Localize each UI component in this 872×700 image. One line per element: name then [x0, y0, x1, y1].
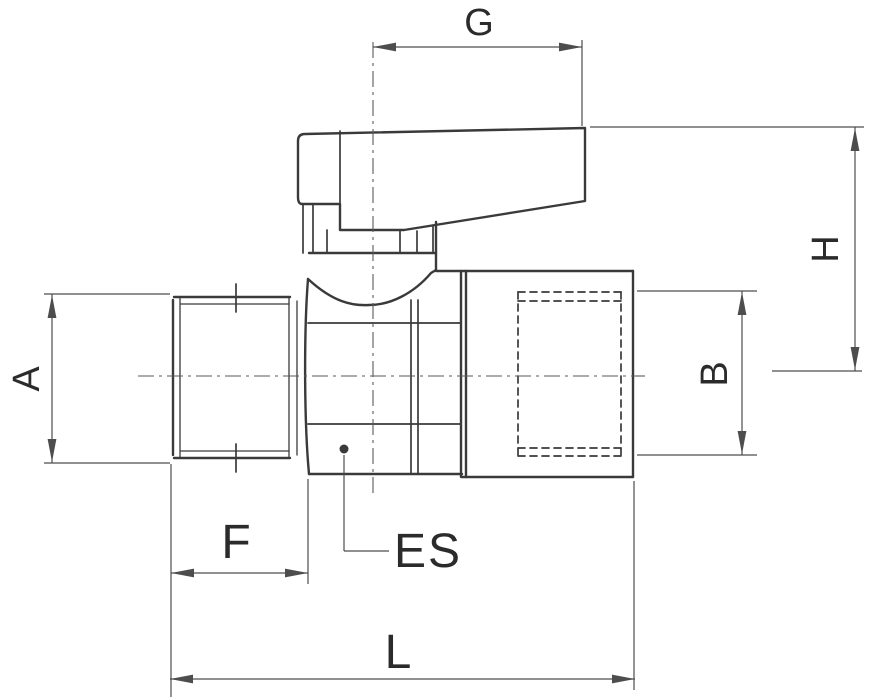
dimension-f: F	[171, 464, 308, 697]
dimension-l: L	[170, 481, 635, 690]
valve-stem-gland	[303, 204, 436, 270]
label-b: B	[694, 361, 736, 386]
label-g: G	[464, 2, 494, 44]
dimension-a: A	[6, 294, 170, 463]
internal-thread-hidden-lines	[518, 292, 621, 456]
es-callout: ES	[340, 445, 463, 579]
ball-valve-drawing: G H A B	[0, 0, 872, 700]
label-l: L	[385, 626, 412, 679]
drawing-canvas: G H A B	[0, 0, 872, 700]
male-thread-end	[173, 284, 297, 472]
valve-hex-body	[305, 270, 466, 477]
label-f: F	[221, 516, 250, 569]
dimension-g: G	[373, 2, 582, 126]
label-es: ES	[394, 525, 462, 578]
centerlines	[138, 42, 645, 493]
es-reference-dot	[340, 445, 349, 454]
dimension-h: H	[590, 127, 864, 371]
label-a: A	[6, 366, 48, 392]
dimension-b: B	[637, 291, 757, 455]
label-h: H	[805, 235, 847, 262]
valve-handle	[298, 128, 585, 230]
